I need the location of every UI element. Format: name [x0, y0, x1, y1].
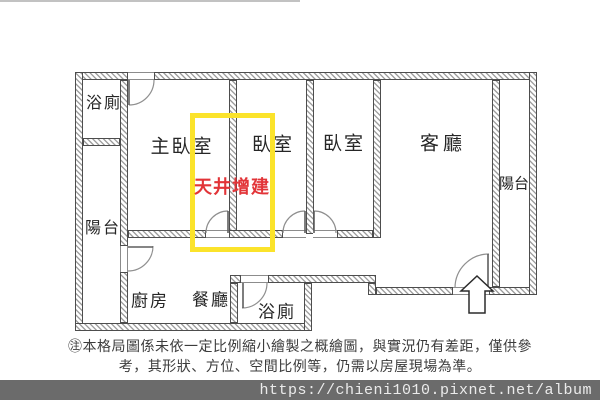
floorplan-image: 浴廁 主臥室 臥室 臥室 客廳 陽台 陽台 廚房 餐廳 浴廁 天井增建 ㊟本格局… — [0, 0, 600, 400]
wall-bath-right-outer — [304, 283, 312, 331]
lightwell-annotation: 天井增建 — [194, 173, 270, 199]
disclaimer-line1: ㊟本格局圖係未依一定比例縮小繪製之概繪圖，與實況仍有差距，僅供參 — [68, 336, 532, 356]
door-arc-kitchen — [128, 246, 153, 271]
door-arc-top — [129, 80, 154, 105]
door-opening-kitchen — [120, 246, 128, 272]
door-opening-bath — [241, 275, 268, 283]
wall-left-column-lower — [120, 272, 128, 323]
door-opening-top — [128, 72, 154, 80]
door-opening-bedroom2 — [313, 230, 337, 238]
watermark-bar: https://chieni1010.pixnet.net/album — [0, 380, 600, 400]
wall-bath-top-seg1 — [230, 275, 241, 283]
room-label-bedroom-2: 臥室 — [323, 129, 365, 156]
room-label-balcony-right: 陽台 — [499, 173, 529, 194]
wall-bottom-right-seg1 — [376, 287, 453, 295]
wall-right-outer — [529, 72, 537, 295]
wall-bottom-left — [75, 323, 312, 331]
wall-bath-top-seg2 — [268, 275, 376, 283]
wall-bathtl-bottom — [83, 138, 120, 146]
room-label-bath-top-left: 浴廁 — [86, 89, 122, 113]
door-opening-bedroom1 — [283, 230, 306, 238]
room-label-kitchen: 廚房 — [131, 287, 169, 312]
wall-top-seg2 — [154, 72, 537, 80]
wall-bed1-bed2 — [306, 80, 314, 234]
door-arc-entrance — [455, 254, 489, 288]
room-label-living-room: 客廳 — [420, 129, 466, 156]
room-label-bath-bottom: 浴廁 — [258, 298, 296, 323]
wall-bath-left — [230, 283, 238, 323]
wall-bed2-living — [373, 80, 381, 238]
photo-edge-line — [0, 0, 300, 2]
room-label-balcony-left: 陽台 — [85, 214, 121, 238]
room-label-dining-room: 餐廳 — [192, 286, 230, 311]
wall-step — [368, 283, 376, 295]
wall-bedrooms-bottom-seg3 — [337, 230, 373, 238]
door-opening-entrance — [453, 287, 489, 295]
disclaimer-line2: 考，其形狀、方位、空間比例等，仍需以房屋現場為準。 — [119, 356, 482, 376]
watermark-url: https://chieni1010.pixnet.net/album — [259, 382, 592, 399]
wall-left-outer — [75, 72, 83, 331]
